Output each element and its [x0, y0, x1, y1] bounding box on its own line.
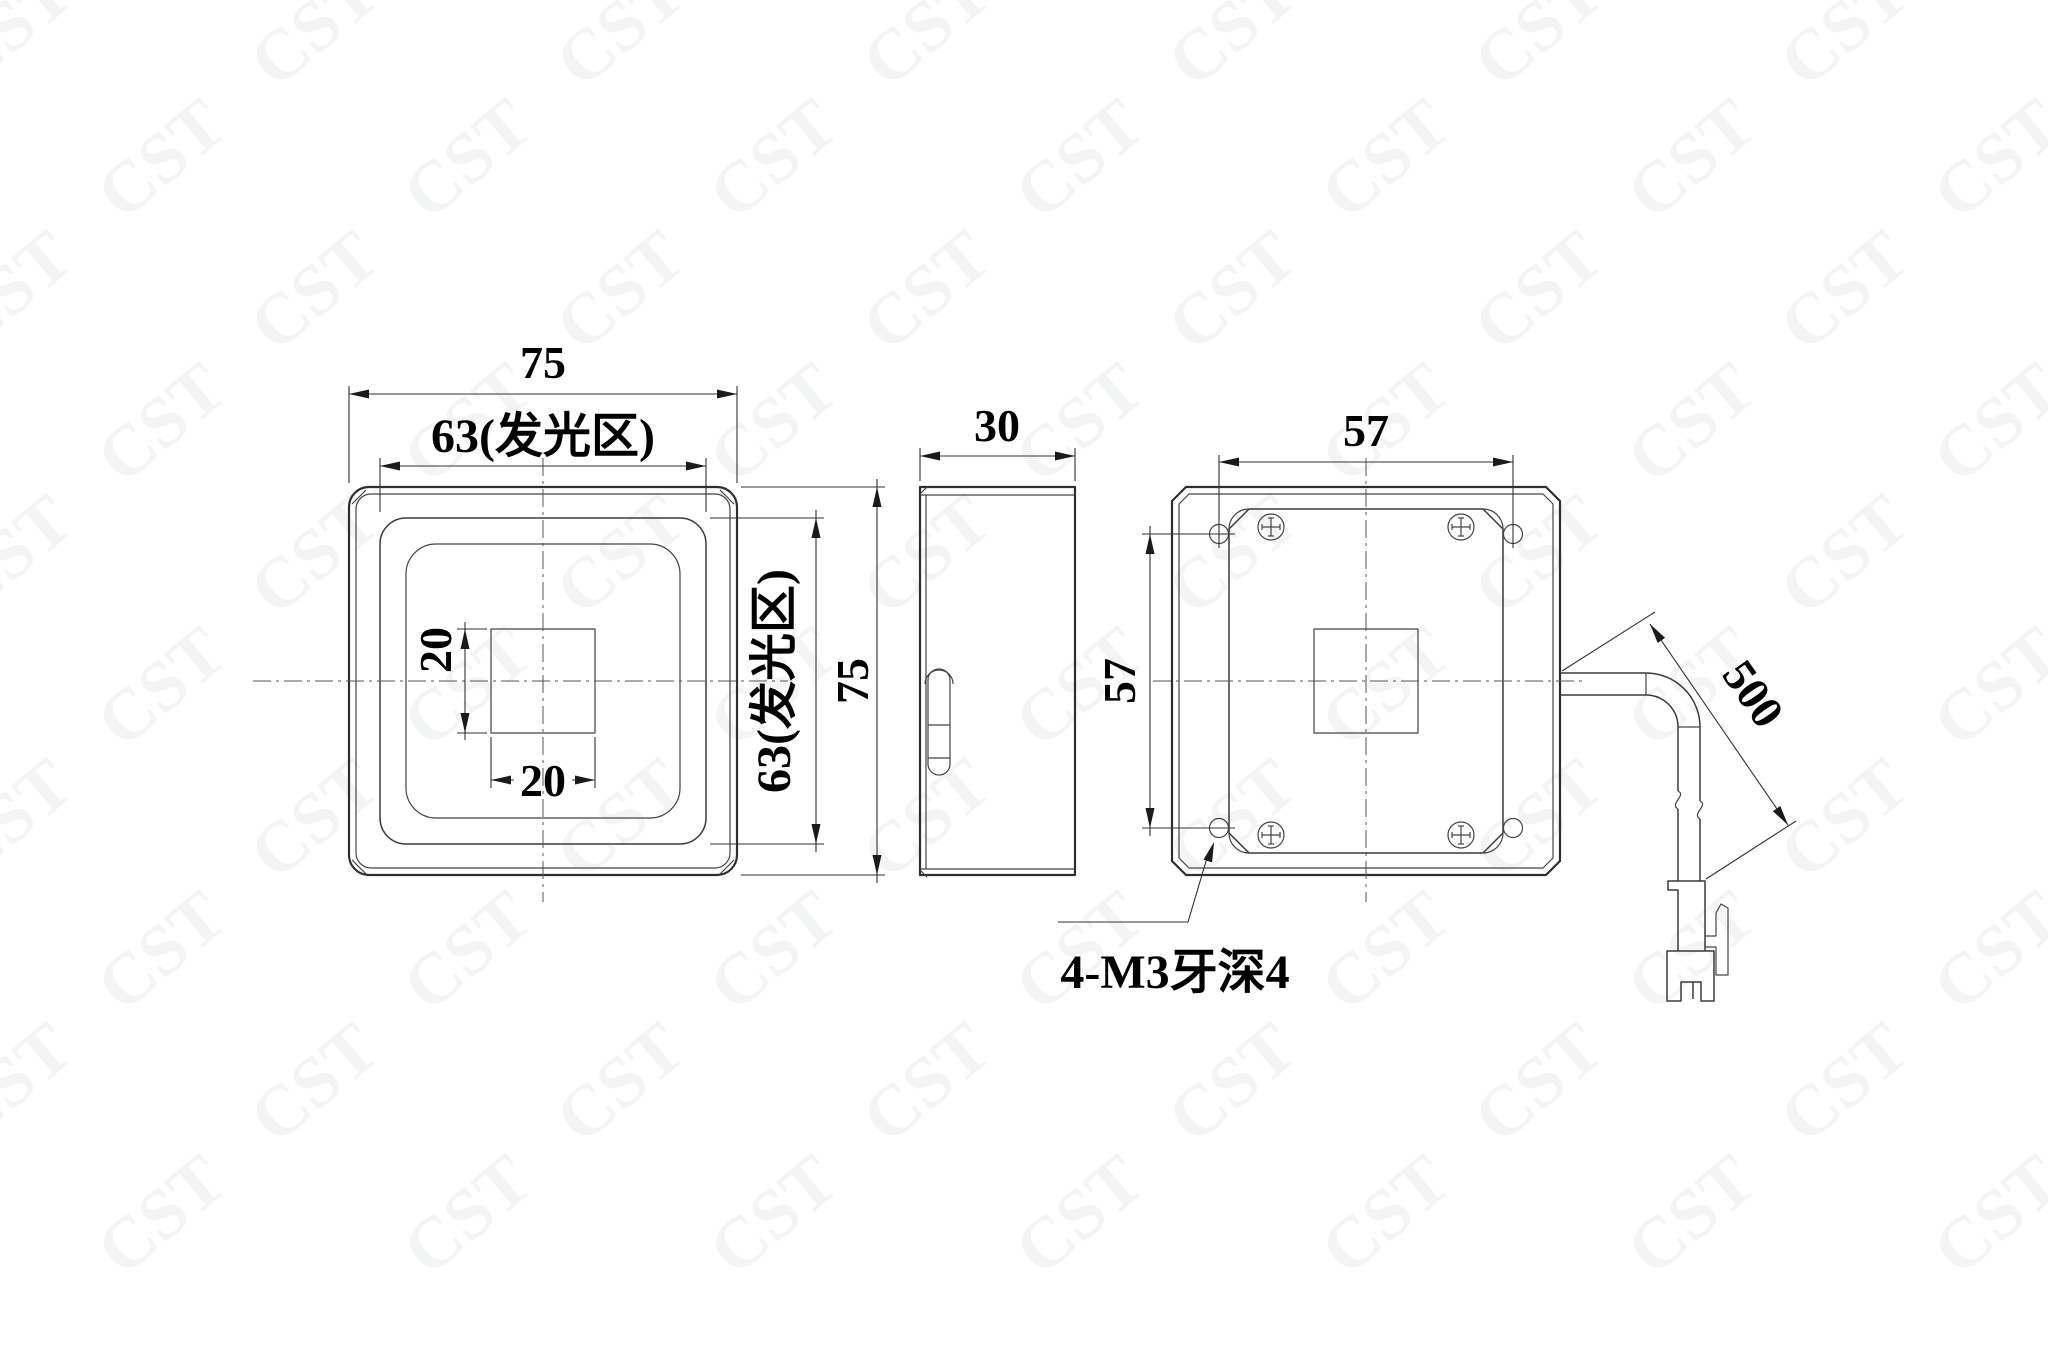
watermark-text: CST: [1459, 1007, 1618, 1158]
watermark-text: CST: [1306, 1139, 1465, 1290]
watermark-text: CST: [694, 875, 853, 1026]
watermark-text: CST: [541, 1007, 700, 1158]
watermark-text: CST: [82, 347, 241, 498]
watermark-text: CST: [541, 479, 700, 630]
watermark-text: CST: [0, 1007, 88, 1158]
watermark-text: CST: [1765, 215, 1924, 366]
watermark-text: CST: [1459, 0, 1618, 102]
watermark-text: CST: [1153, 479, 1312, 630]
watermark-text: CST: [1306, 875, 1465, 1026]
watermark-layer: CSTCSTCSTCSTCSTCSTCSTCSTCSTCSTCSTCSTCSTC…: [0, 0, 2048, 1290]
watermark-text: CST: [1918, 611, 2048, 762]
watermark-text: CST: [1765, 1007, 1924, 1158]
watermark-text: CST: [235, 1007, 394, 1158]
watermark-text: CST: [541, 0, 700, 102]
watermark-text: CST: [388, 875, 547, 1026]
technical-drawing: CSTCSTCSTCSTCSTCSTCSTCSTCSTCSTCSTCSTCSTC…: [0, 0, 2048, 1366]
watermark-text: CST: [0, 0, 88, 102]
watermark-text: CST: [235, 215, 394, 366]
watermark-text: CST: [1000, 347, 1159, 498]
watermark-text: CST: [1612, 347, 1771, 498]
screw-icon: [1258, 514, 1284, 540]
thread-note-label: 4-M3牙深4: [1060, 946, 1289, 999]
drawing-page: CSTCSTCSTCSTCSTCSTCSTCSTCSTCSTCSTCSTCSTC…: [0, 0, 2048, 1366]
watermark-text: CST: [235, 0, 394, 102]
watermark-text: CST: [1459, 479, 1618, 630]
watermark-text: CST: [235, 479, 394, 630]
dim-center-square-width-label: 20: [520, 755, 566, 806]
screw-icon: [1448, 514, 1474, 540]
watermark-text: CST: [82, 611, 241, 762]
watermark-text: CST: [847, 215, 1006, 366]
watermark-text: CST: [0, 215, 88, 366]
dim-back-span-vertical-label: 57: [1094, 658, 1145, 704]
watermark-text: CST: [0, 479, 88, 630]
watermark-text: CST: [0, 743, 88, 894]
watermark-text: CST: [1612, 1139, 1771, 1290]
watermark-text: CST: [1765, 0, 1924, 102]
watermark-text: CST: [847, 1007, 1006, 1158]
dim-front-height-label: 75: [827, 658, 878, 704]
watermark-text: CST: [82, 1139, 241, 1290]
watermark-text: CST: [1153, 215, 1312, 366]
watermark-text: CST: [1765, 743, 1924, 894]
cable-break-symbol: [1675, 791, 1702, 819]
watermark-text: CST: [388, 1139, 547, 1290]
watermark-text: CST: [1306, 83, 1465, 234]
watermark-text: CST: [1306, 611, 1465, 762]
watermark-text: CST: [1918, 875, 2048, 1026]
watermark-text: CST: [694, 83, 853, 234]
dim-back-span-horizontal-label: 57: [1343, 405, 1389, 456]
dim-front-glow-height-label: 63(发光区): [748, 569, 801, 793]
watermark-text: CST: [1918, 83, 2048, 234]
watermark-text: CST: [1612, 83, 1771, 234]
watermark-text: CST: [1153, 1007, 1312, 1158]
watermark-text: CST: [1918, 1139, 2048, 1290]
dim-side-depth-label: 30: [974, 400, 1020, 451]
watermark-text: CST: [1000, 83, 1159, 234]
watermark-text: CST: [1459, 743, 1618, 894]
watermark-text: CST: [847, 0, 1006, 102]
dim-front-glow-width-label: 63(发光区): [431, 410, 655, 463]
watermark-text: CST: [1918, 347, 2048, 498]
dim-center-square-height-label: 20: [410, 627, 461, 673]
watermark-text: CST: [1153, 0, 1312, 102]
watermark-text: CST: [1765, 479, 1924, 630]
watermark-text: CST: [82, 83, 241, 234]
watermark-text: CST: [82, 875, 241, 1026]
watermark-text: CST: [1000, 1139, 1159, 1290]
watermark-text: CST: [1459, 215, 1618, 366]
watermark-text: CST: [235, 743, 394, 894]
dim-front-width-label: 75: [520, 337, 566, 388]
watermark-text: CST: [694, 347, 853, 498]
watermark-text: CST: [1153, 743, 1312, 894]
watermark-text: CST: [694, 1139, 853, 1290]
screw-icon: [1258, 822, 1284, 848]
screw-icon: [1448, 822, 1474, 848]
watermark-text: CST: [388, 83, 547, 234]
